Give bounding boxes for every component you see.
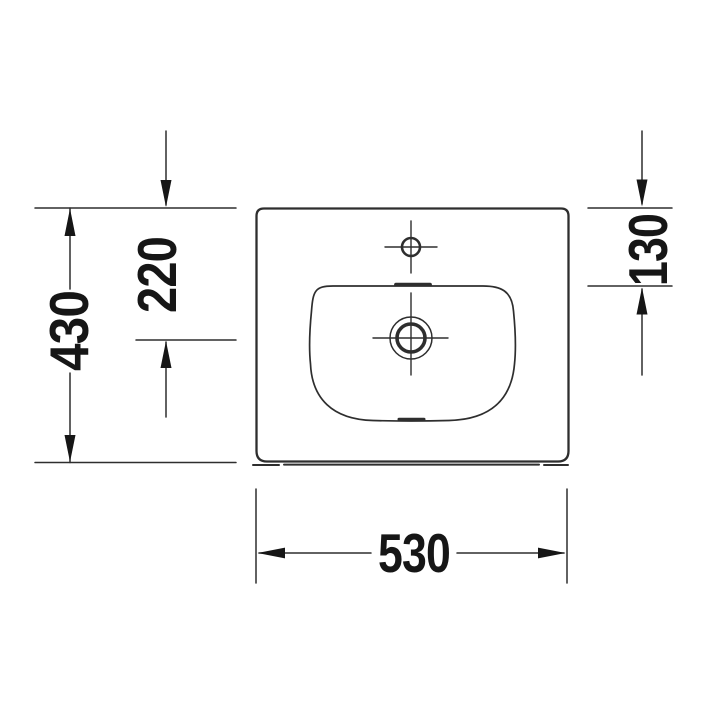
dimension-labels: 430 220 130 530 xyxy=(38,214,679,584)
dim-drain-offset-arrow-up xyxy=(161,341,172,368)
linework xyxy=(35,131,672,583)
dim-depth-arrow-down xyxy=(65,435,76,462)
washbasin-technical-drawing-page: 430 220 130 530 xyxy=(0,0,710,710)
dim-drain-offset-label: 220 xyxy=(126,237,188,313)
dim-width-arrow-left xyxy=(258,548,286,559)
dim-bowl-offset-label: 130 xyxy=(617,214,679,286)
dim-width-label: 530 xyxy=(378,522,450,584)
dim-bowl-offset-arrow-up xyxy=(637,288,648,315)
dim-drain-offset-arrow-down xyxy=(161,180,172,207)
dim-depth-arrow-up xyxy=(65,209,76,237)
dim-depth-label: 430 xyxy=(38,291,100,371)
washbasin-top-view-drawing: 430 220 130 530 xyxy=(0,0,710,710)
arrowheads xyxy=(65,180,648,559)
dim-bowl-offset-arrow-down xyxy=(637,180,648,207)
dim-width-arrow-right xyxy=(538,548,566,559)
